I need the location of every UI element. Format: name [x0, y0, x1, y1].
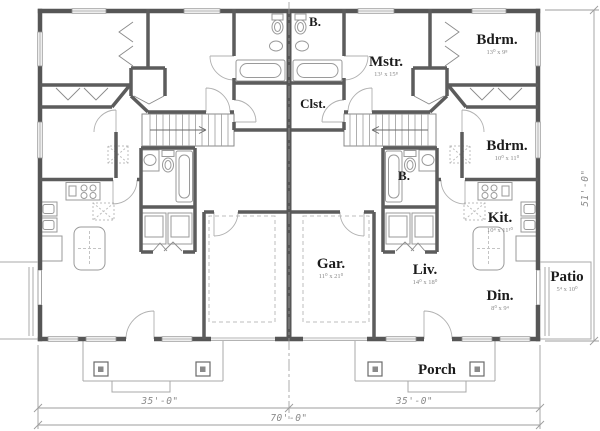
unit-right	[289, 9, 591, 392]
label-dining: Din.	[486, 288, 513, 304]
dim-left-unit-width: 35'-0"	[140, 396, 178, 407]
dim-overall-depth: 51'-0"	[580, 169, 591, 206]
dims-bedroom-upper: 13⁰ x 9⁸	[486, 48, 508, 56]
floor-plan-drawing: B. Mstr. 13¹ x 15⁸ Bdrm. 13⁰ x 9⁸ Clst. …	[0, 0, 600, 431]
dims-kitchen: 10⁴ x 11¹⁰	[487, 226, 513, 234]
dims-bedroom-right: 10⁰ x 11⁰	[495, 154, 520, 162]
label-porch: Porch	[418, 362, 457, 378]
label-garage: Gar.	[317, 256, 345, 272]
dims-master: 13¹ x 15⁸	[374, 71, 398, 78]
label-kitchen: Kit.	[488, 210, 513, 226]
label-patio: Patio	[550, 269, 583, 285]
label-living: Liv.	[413, 262, 438, 278]
dims-patio: 5⁴ x 10⁰	[556, 285, 578, 293]
unit-left	[0, 9, 289, 392]
label-master: Mstr.	[369, 54, 403, 70]
label-closet: Clst.	[300, 96, 326, 111]
dim-total-width: 70'-0"	[270, 413, 307, 424]
floor-plan: B. Mstr. 13¹ x 15⁸ Bdrm. 13⁰ x 9⁸ Clst. …	[0, 0, 600, 431]
label-bath-lower: B.	[398, 168, 410, 183]
label-bath-upper: B.	[309, 14, 321, 29]
dims-living: 14⁰ x 18⁰	[413, 278, 438, 286]
label-bedroom-right: Bdrm.	[486, 138, 528, 154]
dims-garage: 11⁰ x 21⁰	[319, 272, 344, 280]
dim-right-unit-width: 35'-0"	[395, 396, 433, 407]
label-bedroom-upper: Bdrm.	[476, 32, 518, 48]
dims-dining: 8⁰ x 9⁴	[491, 304, 510, 312]
